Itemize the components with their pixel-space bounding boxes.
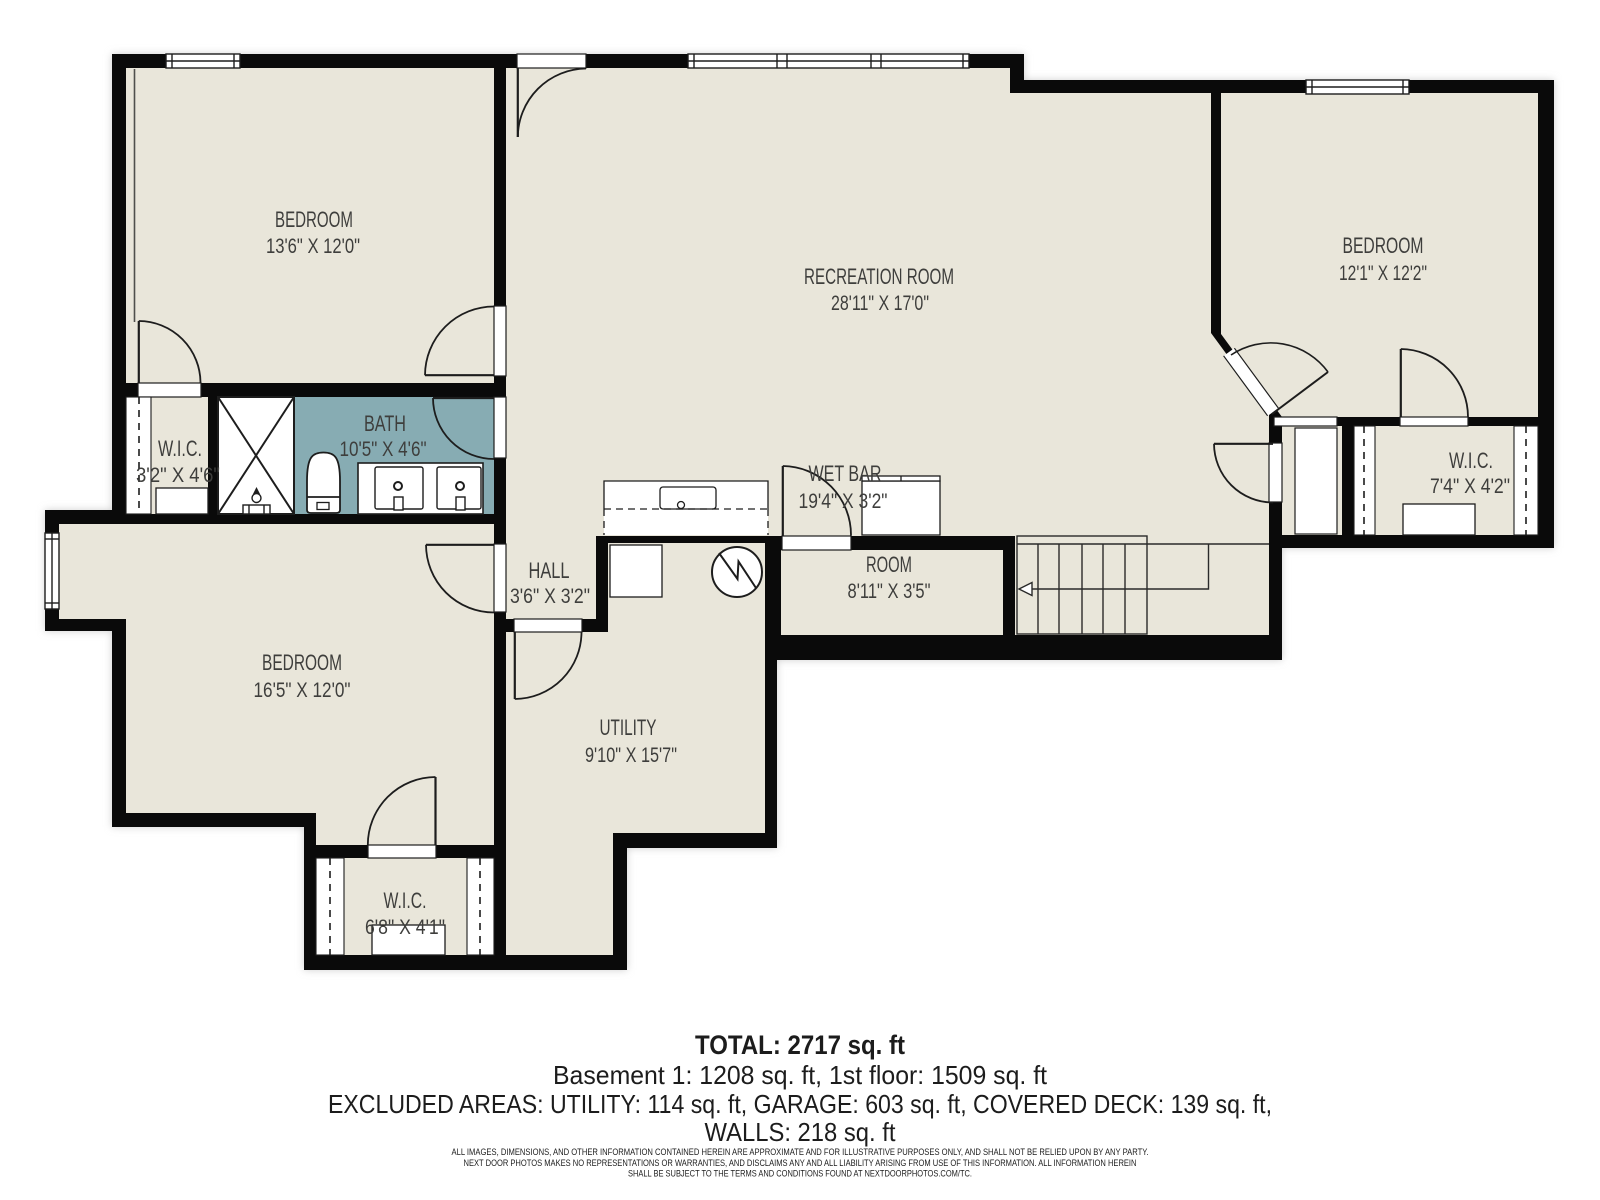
svg-text:W.I.C.: W.I.C. bbox=[384, 888, 427, 913]
svg-text:BATH: BATH bbox=[364, 411, 406, 436]
svg-text:28'11" X 17'0": 28'11" X 17'0" bbox=[831, 292, 929, 315]
svg-text:WET BAR: WET BAR bbox=[809, 461, 882, 486]
svg-text:WALLS: 218 sq. ft: WALLS: 218 sq. ft bbox=[705, 1117, 897, 1147]
svg-text:BEDROOM: BEDROOM bbox=[262, 650, 342, 675]
svg-text:NEXT DOOR PHOTOS MAKES NO REPR: NEXT DOOR PHOTOS MAKES NO REPRESENTATION… bbox=[464, 1158, 1137, 1168]
svg-text:Basement 1: 1208 sq. ft, 1st f: Basement 1: 1208 sq. ft, 1st floor: 1509… bbox=[553, 1060, 1048, 1090]
svg-text:7'4" X 4'2": 7'4" X 4'2" bbox=[1430, 475, 1510, 498]
svg-text:19'4" X 3'2": 19'4" X 3'2" bbox=[799, 490, 888, 513]
svg-text:13'6" X 12'0": 13'6" X 12'0" bbox=[266, 235, 360, 258]
svg-text:UTILITY: UTILITY bbox=[600, 715, 657, 740]
svg-text:SHALL BE SUBJECT TO THE TERMS: SHALL BE SUBJECT TO THE TERMS AND CONDIT… bbox=[628, 1169, 972, 1179]
svg-text:ALL IMAGES, DIMENSIONS, AND OT: ALL IMAGES, DIMENSIONS, AND OTHER INFORM… bbox=[452, 1147, 1149, 1157]
svg-text:8'11" X 3'5": 8'11" X 3'5" bbox=[848, 580, 931, 603]
svg-text:EXCLUDED AREAS: UTILITY: 114 s: EXCLUDED AREAS: UTILITY: 114 sq. ft, GAR… bbox=[328, 1089, 1272, 1119]
svg-text:BEDROOM: BEDROOM bbox=[1343, 233, 1424, 258]
svg-text:TOTAL: 2717 sq. ft: TOTAL: 2717 sq. ft bbox=[695, 1030, 905, 1060]
svg-text:HALL: HALL bbox=[529, 558, 570, 583]
svg-text:6'8" X 4'1": 6'8" X 4'1" bbox=[365, 916, 445, 939]
svg-text:W.I.C.: W.I.C. bbox=[1449, 448, 1493, 473]
svg-text:3'6" X 3'2": 3'6" X 3'2" bbox=[510, 585, 590, 608]
svg-text:RECREATION ROOM: RECREATION ROOM bbox=[804, 264, 954, 289]
svg-text:9'10" X 15'7": 9'10" X 15'7" bbox=[585, 744, 677, 767]
svg-text:3'2" X 4'6": 3'2" X 4'6" bbox=[136, 464, 220, 487]
svg-text:BEDROOM: BEDROOM bbox=[275, 207, 353, 232]
svg-text:10'5" X 4'6": 10'5" X 4'6" bbox=[340, 438, 427, 461]
svg-text:W.I.C.: W.I.C. bbox=[158, 436, 202, 461]
svg-text:ROOM: ROOM bbox=[866, 552, 912, 577]
svg-text:16'5" X 12'0": 16'5" X 12'0" bbox=[254, 679, 351, 702]
svg-text:12'1" X 12'2": 12'1" X 12'2" bbox=[1339, 262, 1427, 285]
